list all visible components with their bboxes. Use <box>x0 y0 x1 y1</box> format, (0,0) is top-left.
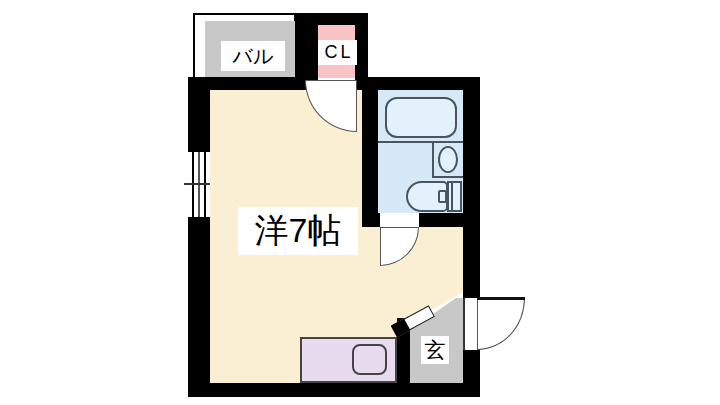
floorplan-canvas: バル CL 洋7帖 玄 <box>0 0 720 405</box>
toilet-seat-hinge-icon <box>438 190 447 203</box>
wall <box>463 350 480 397</box>
wall <box>357 77 480 90</box>
front-door-swing-icon <box>477 298 525 350</box>
sink-partition-line <box>432 176 463 178</box>
bathroom-divider-line <box>378 141 463 143</box>
sink-partition-line <box>432 141 434 178</box>
wall <box>188 217 210 397</box>
window-tick-mark <box>184 183 210 185</box>
toilet-tank-line <box>451 181 453 212</box>
wall <box>463 77 480 298</box>
main-room-label: 洋7帖 <box>238 207 358 255</box>
wall <box>188 77 210 152</box>
toilet-tank-icon <box>447 181 462 212</box>
balcony-label: バル <box>221 41 285 71</box>
bathtub-icon <box>385 97 457 138</box>
closet-label: CL <box>318 40 357 65</box>
front-door-leaf <box>477 297 525 300</box>
entrance-label: 玄 <box>421 336 449 364</box>
kitchen-burner-icon <box>352 344 387 375</box>
sink-basin-icon <box>438 146 458 173</box>
wall <box>362 90 378 227</box>
bathroom-door-opening <box>380 213 419 227</box>
wall <box>188 383 480 397</box>
